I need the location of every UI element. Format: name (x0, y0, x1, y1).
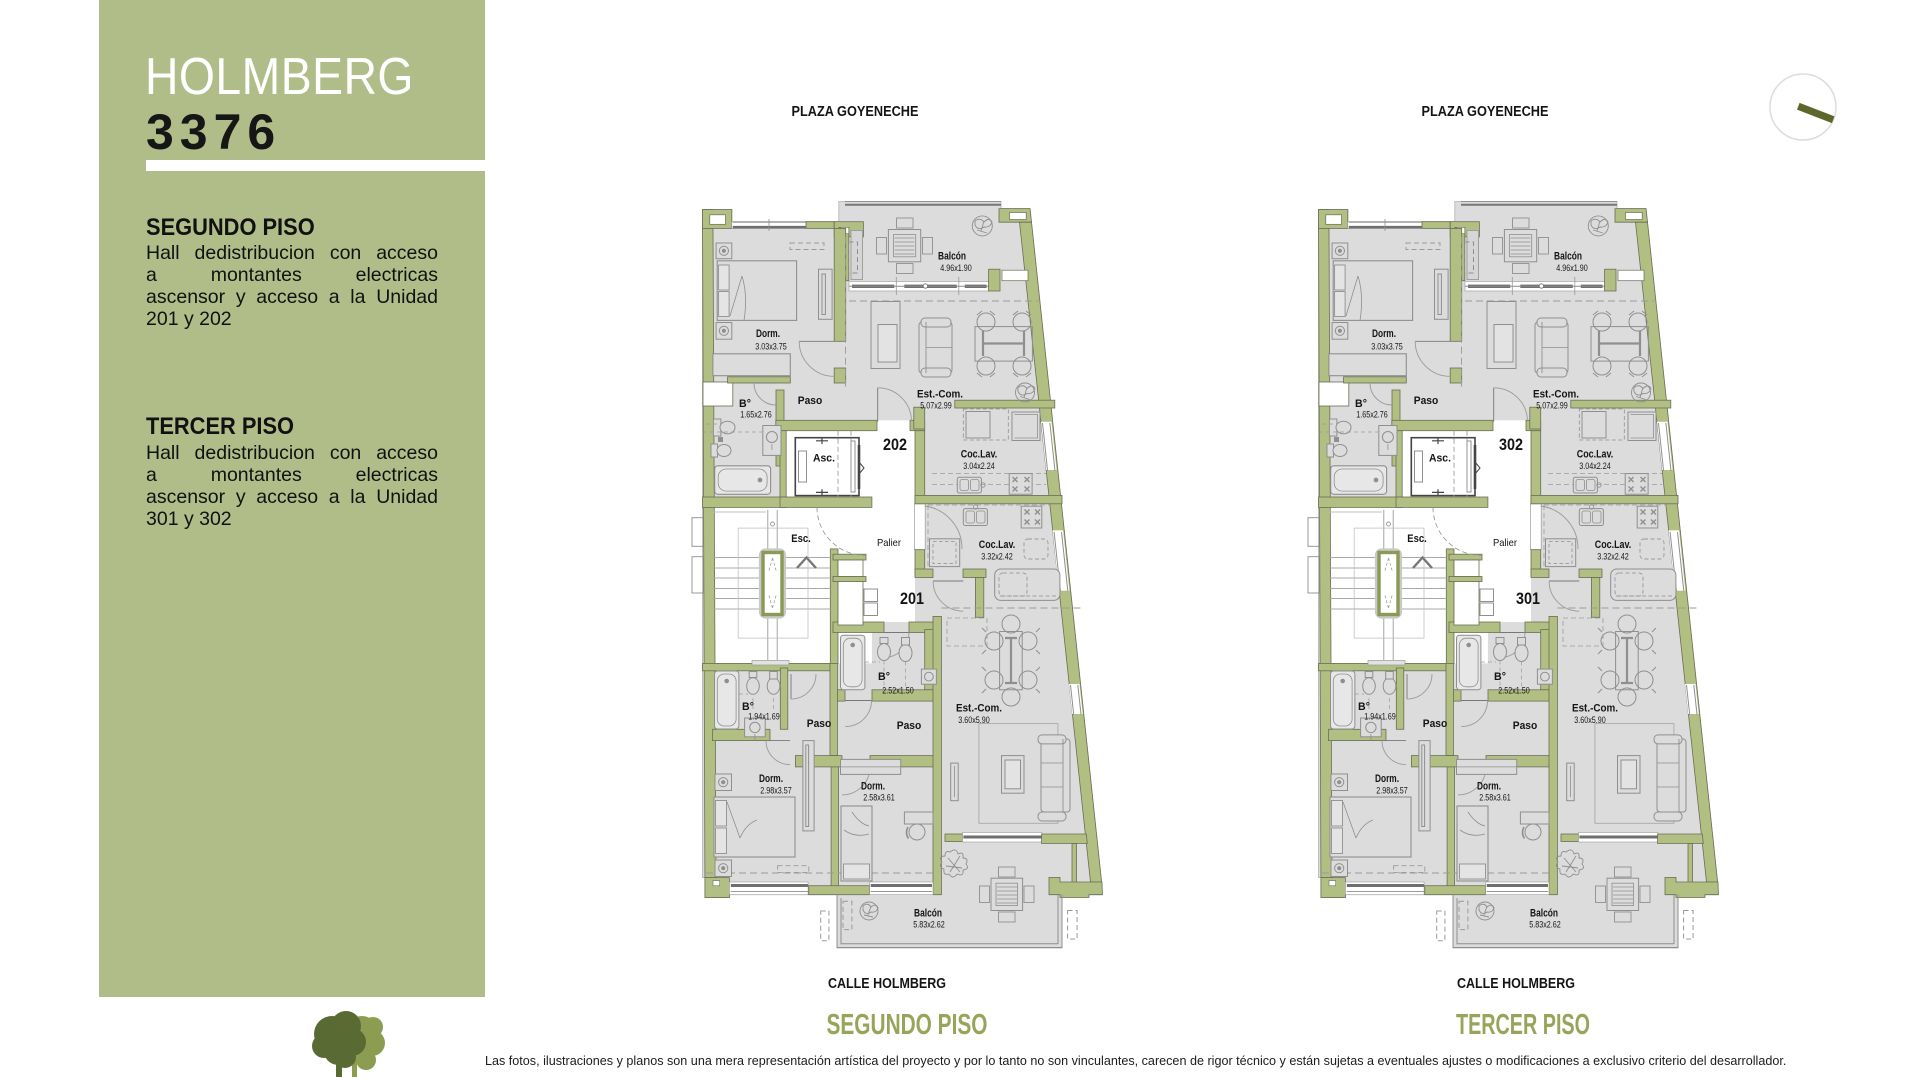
svg-text:PLAZA GOYENECHE: PLAZA GOYENECHE (792, 104, 919, 120)
svg-text:301: 301 (1516, 589, 1540, 608)
svg-text:SEGUNDO PISO: SEGUNDO PISO (827, 1009, 988, 1041)
svg-text:202: 202 (883, 435, 907, 454)
svg-text:302: 302 (1499, 435, 1523, 454)
svg-text:201: 201 (900, 589, 924, 608)
svg-text:PLAZA GOYENECHE: PLAZA GOYENECHE (1422, 104, 1549, 120)
svg-text:CALLE HOLMBERG: CALLE HOLMBERG (828, 976, 946, 992)
svg-text:CALLE HOLMBERG: CALLE HOLMBERG (1457, 976, 1575, 992)
svg-text:TERCER PISO: TERCER PISO (1456, 1009, 1590, 1041)
